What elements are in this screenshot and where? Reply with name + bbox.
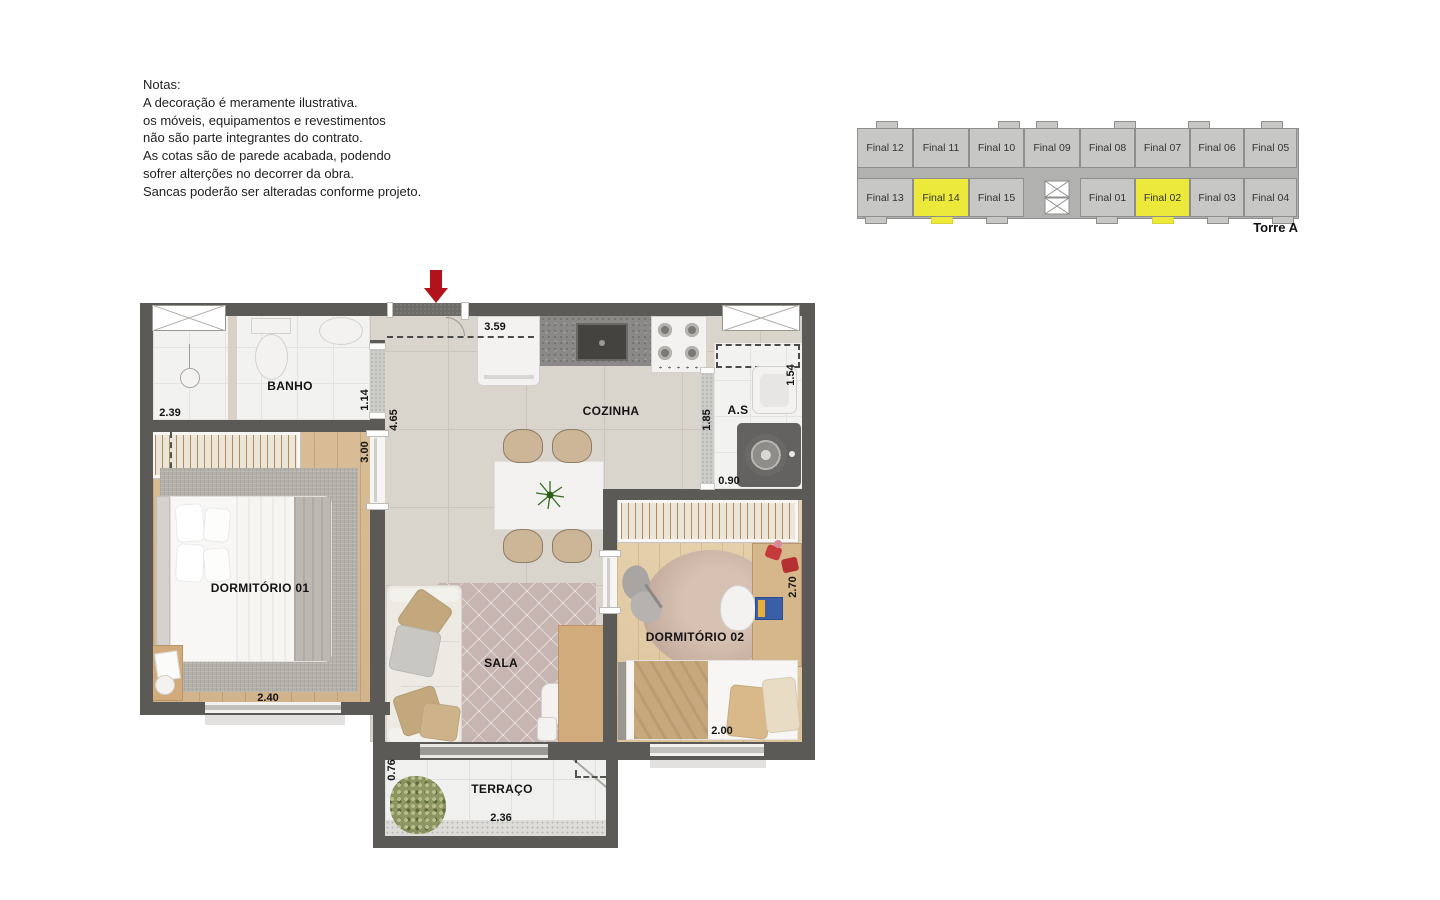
glass-partition [370, 348, 385, 414]
keyplan-balcony-tab-final-02 [1152, 216, 1174, 224]
door-frame [367, 431, 388, 436]
wall-bedroom2-divider [603, 500, 617, 555]
sofa-pillow-icon [419, 702, 462, 743]
keyplan-unit-final-09: Final 09 [1024, 128, 1080, 168]
entrance-doormat [391, 303, 463, 316]
dim-terraco-depth: 0.76 [386, 759, 398, 780]
bed-throw-blanket [294, 497, 331, 661]
entrance-arrow-head [424, 288, 448, 303]
door-frame [388, 303, 392, 317]
shower-hose [189, 344, 190, 370]
bedroom2-window [650, 744, 764, 756]
dim-as-width: 0.90 [718, 475, 739, 487]
notes-line: sofrer alterções no decorrer da obra. [143, 165, 421, 183]
keyplan-balcony-tab [1207, 216, 1229, 224]
keyplan-unit-final-12: Final 12 [857, 128, 913, 168]
book-spine [758, 600, 765, 617]
keyplan-balcony-tab [865, 216, 887, 224]
keyplan-unit-final-01: Final 01 [1080, 178, 1135, 217]
notes-line: não são parte integrantes do contrato. [143, 129, 421, 147]
window-icon [722, 305, 800, 331]
door-frame [600, 551, 620, 556]
door-frame [600, 608, 620, 613]
dining-chair-icon [503, 429, 543, 463]
door-frame [367, 504, 388, 509]
keyplan-unit-final-13: Final 13 [857, 178, 913, 217]
room-label-cozinha: COZINHA [583, 404, 640, 418]
keyplan-unit-final-14: Final 14 [913, 178, 969, 217]
wall-bedroom2-top [603, 489, 815, 500]
glass-partition-cap [701, 484, 714, 489]
pillow-icon [175, 543, 205, 582]
sofa-pillow-icon [388, 624, 443, 679]
keyplan-unit-final-08: Final 08 [1080, 128, 1135, 168]
book-icon [755, 597, 783, 620]
bed-headboard [618, 662, 626, 740]
terrace-sliding-door [420, 744, 548, 758]
refrigerator-handle [484, 375, 534, 379]
toilet-icon [255, 334, 288, 380]
terrace-corner-dashed [575, 776, 606, 778]
wall-left [140, 303, 153, 715]
entrance-arrow-icon [430, 270, 442, 288]
table-lamp-icon [155, 675, 175, 695]
pillow-icon [203, 507, 232, 543]
dim-porta-vidro: 1.14 [359, 389, 371, 410]
stove-knobs [656, 365, 704, 370]
keyplan-unit-final-10: Final 10 [969, 128, 1024, 168]
room-label-dormitorio-01: DORMITÓRIO 01 [211, 581, 310, 595]
washing-machine-icon [737, 423, 801, 487]
keyplan-unit-final-04: Final 04 [1244, 178, 1297, 217]
wall-terrace-bottom [373, 836, 618, 848]
dining-chair-icon [552, 429, 592, 463]
bed-throw-blanket [634, 661, 708, 739]
pillow-icon [175, 503, 206, 543]
dim-as-depth: 1.85 [701, 409, 713, 430]
dim-dorm01-depth: 3.00 [359, 441, 371, 462]
toy-icon [774, 540, 782, 548]
keyplan-unit-final-05: Final 05 [1244, 128, 1297, 168]
window-sill-outside [205, 714, 345, 725]
notes-line: A decoração é meramente ilustrativa. [143, 94, 421, 112]
floorplan-page: Notas: A decoração é meramente ilustrati… [0, 0, 1440, 900]
keyplan-balcony-tab-final-14 [931, 216, 953, 224]
dining-chair-icon [552, 529, 592, 563]
dim-circulacao: 4.65 [388, 409, 400, 430]
keyplan-balcony-tab [986, 216, 1008, 224]
wall-bedroom2-divider [603, 610, 617, 760]
room-label-terraco: TERRAÇO [471, 782, 532, 796]
dim-as-top: 1.54 [785, 364, 797, 385]
notes-block: Notas: A decoração é meramente ilustrati… [143, 76, 421, 201]
toilet-tank [251, 318, 291, 334]
bed-headboard [156, 496, 170, 662]
dim-dorm02-depth: 2.70 [787, 576, 799, 597]
keyplan-unit-final-15: Final 15 [969, 178, 1024, 217]
dim-cozinha-width: 3.59 [484, 321, 505, 333]
bed-duvet [236, 497, 294, 661]
wall-living-left [373, 702, 385, 848]
desk-chair-icon [720, 585, 756, 631]
bedroom1-door-leaf [374, 438, 377, 502]
keyplan-unit-final-02: Final 02 [1135, 178, 1190, 217]
dim-dorm01-width: 2.40 [257, 692, 278, 704]
dim-dorm02-width: 2.00 [711, 725, 732, 737]
wall-bathroom-bottom [153, 420, 372, 432]
keyplan-unit-final-07: Final 07 [1135, 128, 1190, 168]
washer-control [789, 451, 795, 457]
wall-top [140, 303, 815, 316]
table-plant-icon [534, 479, 566, 511]
shower-partition [228, 316, 237, 420]
bedroom1-door [370, 435, 385, 505]
wall-terrace-right [606, 760, 618, 848]
wall-right [802, 303, 815, 760]
shower-head-icon [180, 368, 200, 388]
faucet-icon [599, 340, 605, 346]
window-sill-outside [650, 760, 766, 768]
remote-tray [537, 717, 557, 741]
bedroom2-door [603, 555, 617, 610]
notes-line: os móveis, equipamentos e revestimentos [143, 112, 421, 130]
stove-icon [651, 316, 707, 373]
keyplan-unit-final-03: Final 03 [1190, 178, 1244, 217]
bedroom2-door-leaf [607, 558, 610, 607]
notes-line: Notas: [143, 76, 421, 94]
keyplan-unit-final-06: Final 06 [1190, 128, 1244, 168]
keyplan-balcony-tab [1096, 216, 1118, 224]
dining-chair-icon [503, 529, 543, 563]
room-label-sala: SALA [484, 656, 518, 670]
upper-cabinet-dashed-line [387, 336, 534, 338]
glass-partition-cap [370, 413, 385, 418]
glass-partition-cap [701, 368, 714, 373]
terrace-plant-icon [390, 776, 446, 834]
elevator-icon [1044, 180, 1070, 216]
notes-line: Sancas poderão ser alteradas conforme pr… [143, 183, 421, 201]
door-frame [462, 303, 468, 319]
wall-bedroom1-divider [370, 505, 385, 702]
pillow-icon [761, 676, 800, 733]
pillow-icon [203, 547, 232, 583]
dim-terraco-width: 2.36 [490, 812, 511, 824]
dim-banho-width: 2.39 [159, 407, 180, 419]
room-label-banho: BANHO [267, 379, 313, 393]
wardrobe-icon [618, 500, 798, 542]
keyplan-unit-final-11: Final 11 [913, 128, 969, 168]
room-label-as: A.S [728, 403, 749, 417]
window-icon [152, 305, 226, 331]
keyplan-tower-label: Torre A [1253, 220, 1298, 235]
notes-line: As cotas são de parede acabada, podendo [143, 147, 421, 165]
glass-partition-cap [370, 344, 385, 349]
bathroom-sink-icon [319, 317, 363, 345]
room-label-dormitorio-02: DORMITÓRIO 02 [646, 630, 745, 644]
